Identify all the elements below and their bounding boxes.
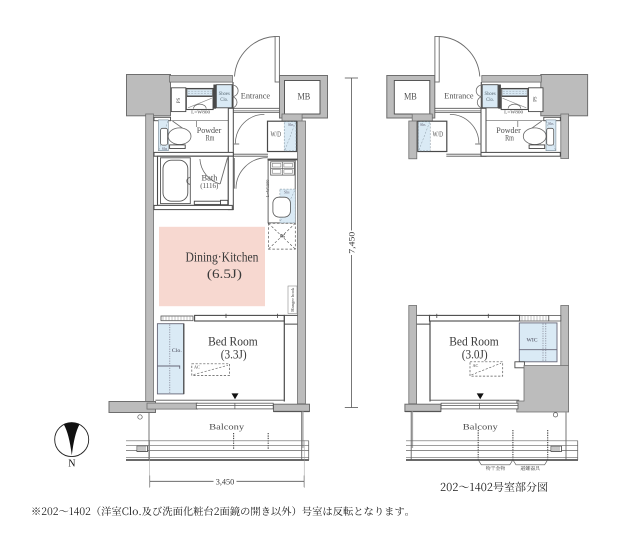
svg-text:7,450: 7,450 xyxy=(346,232,356,254)
svg-text:L=W800: L=W800 xyxy=(504,109,524,114)
svg-text:AC: AC xyxy=(473,363,479,368)
svg-text:L=W800: L=W800 xyxy=(191,109,211,114)
svg-text:Clo.: Clo. xyxy=(172,348,183,354)
svg-text:W/D: W/D xyxy=(271,132,282,139)
svg-text:Shs: Shs xyxy=(284,191,290,195)
svg-text:Hanger hook: Hanger hook xyxy=(290,287,295,312)
svg-text:3,450: 3,450 xyxy=(216,477,235,487)
svg-text:Clo.: Clo. xyxy=(220,98,228,103)
svg-text:WIC: WIC xyxy=(527,338,538,344)
svg-text:Balcony: Balcony xyxy=(463,423,499,432)
svg-text:Shs: Shs xyxy=(548,122,554,126)
svg-text:Rm: Rm xyxy=(505,134,514,143)
svg-text:N: N xyxy=(68,459,75,470)
svg-text:Clo.: Clo. xyxy=(486,98,494,103)
svg-text:Rm: Rm xyxy=(206,134,215,143)
svg-text:Shs: Shs xyxy=(162,147,168,151)
svg-text:Shoes: Shoes xyxy=(484,92,495,97)
svg-text:MB: MB xyxy=(298,91,311,101)
svg-text:Shs: Shs xyxy=(288,123,294,127)
svg-text:Shoes: Shoes xyxy=(219,92,230,97)
svg-text:L=W1500: L=W1500 xyxy=(265,179,270,197)
svg-text:PS: PS xyxy=(534,96,539,102)
svg-text:Dining·Kitchen: Dining·Kitchen xyxy=(186,249,259,264)
svg-text:Balcony: Balcony xyxy=(209,423,245,432)
svg-text:Entrance: Entrance xyxy=(241,91,270,100)
svg-text:Bed Room: Bed Room xyxy=(208,333,258,348)
svg-text:MB: MB xyxy=(404,91,417,101)
svg-text:(6.5J): (6.5J) xyxy=(207,266,242,281)
svg-text:(1116): (1116) xyxy=(200,182,219,190)
svg-text:Bed Room: Bed Room xyxy=(449,333,499,348)
svg-text:W/D: W/D xyxy=(433,132,444,139)
svg-text:(3.0J): (3.0J) xyxy=(462,348,488,362)
svg-text:Shs: Shs xyxy=(420,123,426,127)
svg-text:(3.3J): (3.3J) xyxy=(221,348,247,362)
svg-text:PS: PS xyxy=(177,98,182,104)
svg-text:Entrance: Entrance xyxy=(444,91,473,100)
svg-text:AC: AC xyxy=(194,365,200,370)
svg-text:R: R xyxy=(279,233,287,238)
